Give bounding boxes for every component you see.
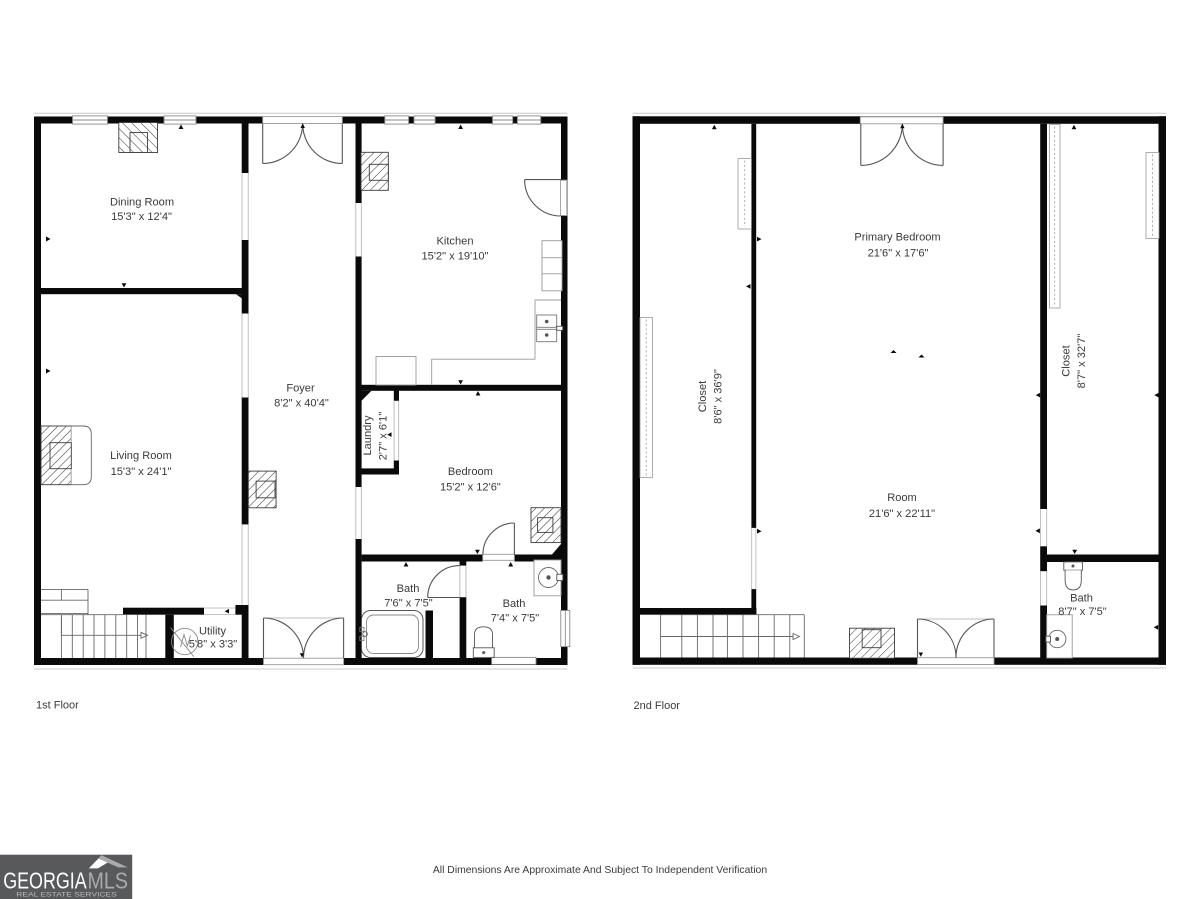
svg-text:Closet: Closet <box>1061 345 1073 376</box>
svg-text:Utility: Utility <box>199 626 227 638</box>
svg-text:5'8" x 3'3": 5'8" x 3'3" <box>189 639 238 651</box>
svg-text:8'7" x 7'5": 8'7" x 7'5" <box>1058 606 1107 618</box>
svg-text:REAL ESTATE SERVICES: REAL ESTATE SERVICES <box>16 892 116 899</box>
svg-text:Bath: Bath <box>503 598 526 610</box>
svg-text:8'2" x 40'4": 8'2" x 40'4" <box>274 398 329 410</box>
svg-text:7'4" x 7'5": 7'4" x 7'5" <box>491 613 540 625</box>
svg-text:7'6" x 7'5": 7'6" x 7'5" <box>384 598 433 610</box>
svg-text:Dining Room: Dining Room <box>110 197 174 209</box>
svg-text:1st Floor: 1st Floor <box>36 700 79 712</box>
svg-text:8'7" x 32'7": 8'7" x 32'7" <box>1076 334 1088 389</box>
svg-text:Bath: Bath <box>1070 593 1093 605</box>
svg-text:15'3" x 12'4": 15'3" x 12'4" <box>111 211 172 223</box>
svg-text:Foyer: Foyer <box>286 383 315 395</box>
svg-text:21'6" x 17'6": 21'6" x 17'6" <box>868 248 929 260</box>
svg-text:15'2" x 12'6": 15'2" x 12'6" <box>440 482 501 494</box>
svg-text:Bath: Bath <box>397 583 420 595</box>
svg-text:21'6" x 22'11": 21'6" x 22'11" <box>869 508 935 520</box>
svg-text:2'7" x 6'1": 2'7" x 6'1" <box>378 412 390 461</box>
svg-text:15'2" x 19'10": 15'2" x 19'10" <box>421 251 488 263</box>
svg-text:8'6" x 36'9": 8'6" x 36'9" <box>713 369 725 424</box>
svg-text:Bedroom: Bedroom <box>448 466 493 478</box>
svg-text:MLS: MLS <box>88 868 129 894</box>
svg-text:Room: Room <box>887 492 917 504</box>
svg-text:Closet: Closet <box>697 381 709 412</box>
svg-text:Kitchen: Kitchen <box>436 236 473 248</box>
svg-text:2nd Floor: 2nd Floor <box>634 700 681 712</box>
svg-text:Primary Bedroom: Primary Bedroom <box>854 232 940 244</box>
svg-text:Living Room: Living Room <box>110 450 172 462</box>
svg-text:15'3" x 24'1": 15'3" x 24'1" <box>111 466 172 478</box>
svg-text:GEORGIA: GEORGIA <box>3 868 87 894</box>
svg-text:Laundry: Laundry <box>362 415 374 456</box>
svg-text:All Dimensions Are Approximate: All Dimensions Are Approximate And Subje… <box>433 865 767 876</box>
